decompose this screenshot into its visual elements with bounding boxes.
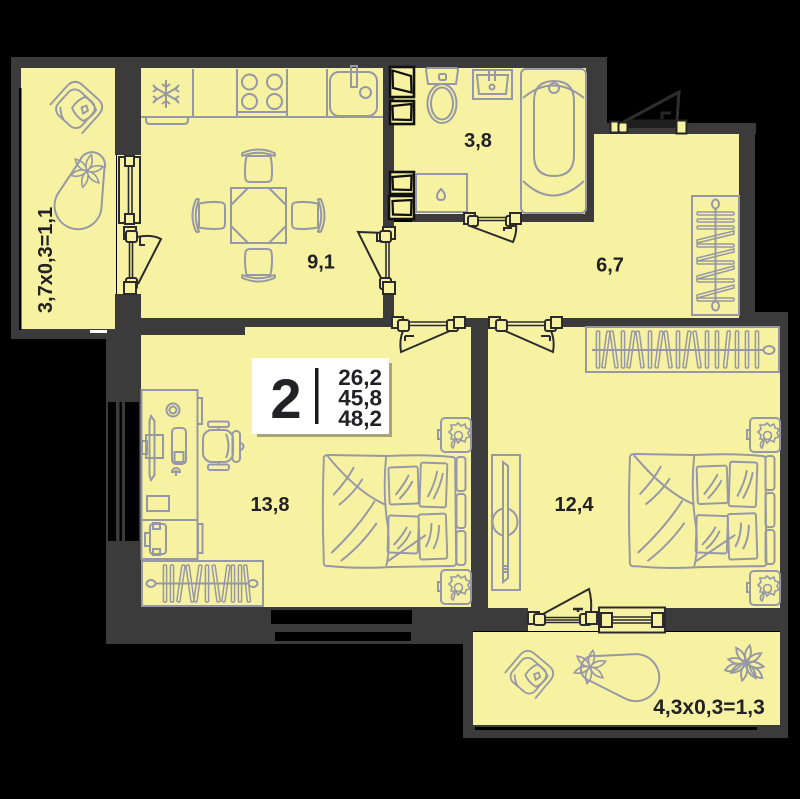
svg-text:4,3x0,3=1,3: 4,3x0,3=1,3 (653, 696, 765, 719)
svg-text:2: 2 (270, 367, 301, 430)
svg-text:3,8: 3,8 (464, 130, 492, 152)
svg-text:13,8: 13,8 (251, 494, 290, 516)
svg-text:3,7x0,3=1,1: 3,7x0,3=1,1 (35, 207, 57, 313)
svg-text:9,1: 9,1 (307, 252, 335, 274)
svg-text:48,2: 48,2 (338, 406, 382, 431)
svg-text:12,4: 12,4 (555, 494, 595, 516)
svg-text:6,7: 6,7 (596, 255, 624, 277)
